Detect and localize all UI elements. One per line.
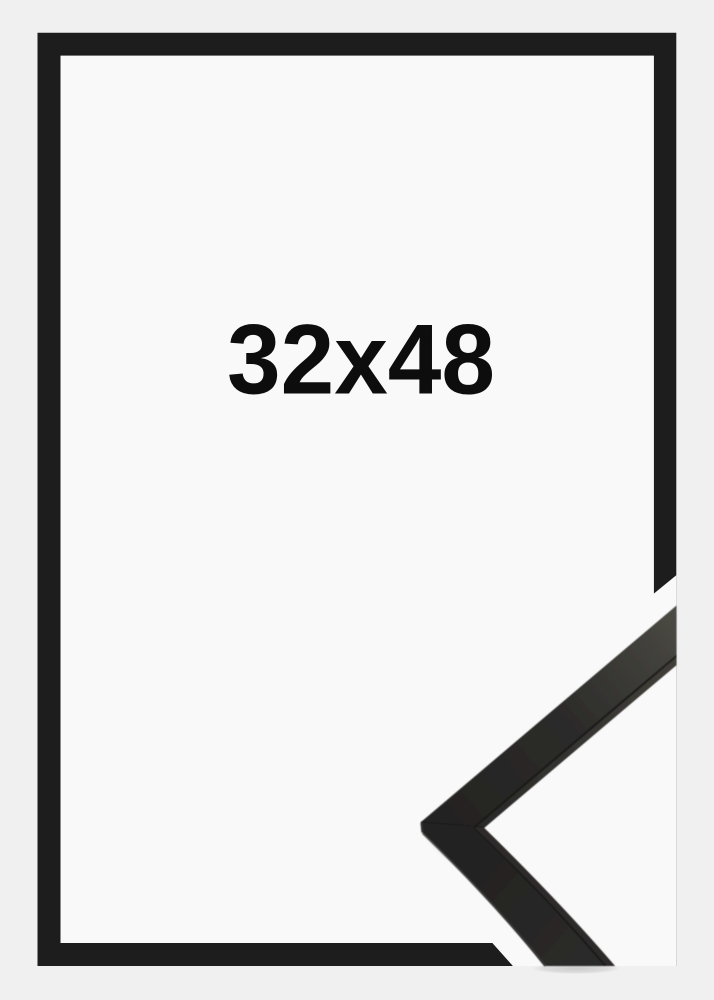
svg-text:32x48: 32x48 bbox=[227, 304, 495, 415]
